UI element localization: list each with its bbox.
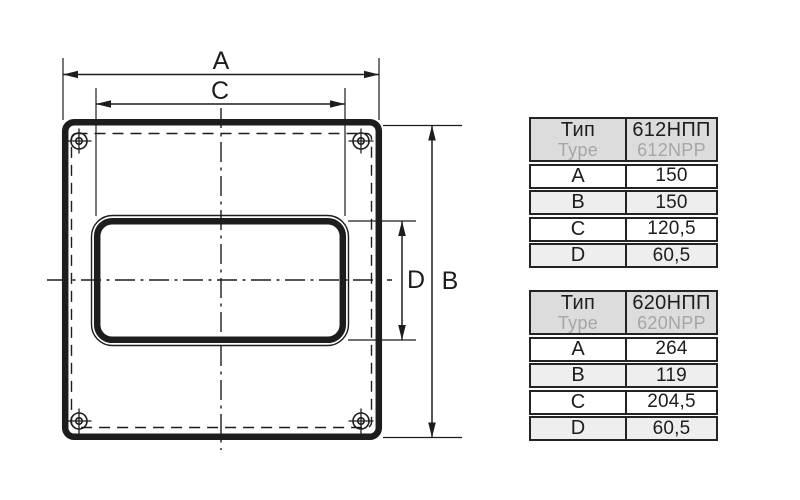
model-label-en: 620NPP	[637, 314, 706, 332]
param-value: 150	[627, 166, 716, 187]
param-name: C	[531, 392, 627, 413]
model-label-ru: 612НПП	[632, 120, 710, 140]
table-header: Тип Type 612НПП 612NPP	[529, 117, 718, 162]
dimension-table-612npp: Тип Type 612НПП 612NPP A 150 B 150 C 120…	[529, 117, 718, 268]
type-label-en: Type	[558, 141, 598, 159]
model-label-en: 612NPP	[637, 141, 706, 159]
param-value: 150	[627, 192, 716, 213]
param-value: 264	[627, 339, 716, 360]
param-name: B	[531, 192, 627, 213]
param-value: 119	[627, 365, 716, 386]
table-row: D 60,5	[529, 416, 718, 441]
dim-label-b: B	[442, 267, 459, 295]
table-header-model-cell: 620НПП 620NPP	[627, 292, 716, 333]
param-name: D	[531, 418, 627, 439]
param-name: A	[531, 339, 627, 360]
param-name: C	[531, 219, 627, 240]
page: A C B	[0, 0, 800, 500]
param-value: 120,5	[627, 219, 716, 240]
type-label-ru: Тип	[561, 120, 595, 140]
table-row: A 264	[529, 337, 718, 362]
model-label-ru: 620НПП	[632, 293, 710, 313]
param-name: A	[531, 166, 627, 187]
param-name: B	[531, 365, 627, 386]
table-row: B 150	[529, 190, 718, 215]
dim-label-d: D	[407, 266, 425, 294]
table-row: A 150	[529, 164, 718, 189]
param-value: 204,5	[627, 392, 716, 413]
dimension-table-620npp: Тип Type 620НПП 620NPP A 264 B 119 C 204…	[529, 290, 718, 441]
table-row: C 120,5	[529, 217, 718, 242]
param-name: D	[531, 245, 627, 266]
table-row: B 119	[529, 363, 718, 388]
table-row: C 204,5	[529, 390, 718, 415]
dim-label-c: C	[211, 77, 229, 105]
type-label-ru: Тип	[561, 293, 595, 313]
table-header-model-cell: 612НПП 612NPP	[627, 119, 716, 160]
param-value: 60,5	[627, 418, 716, 439]
table-header-type-cell: Тип Type	[531, 119, 627, 160]
table-row: D 60,5	[529, 243, 718, 268]
table-header-type-cell: Тип Type	[531, 292, 627, 333]
type-label-en: Type	[558, 314, 598, 332]
param-value: 60,5	[627, 245, 716, 266]
table-header: Тип Type 620НПП 620NPP	[529, 290, 718, 335]
technical-drawing: A C B	[0, 0, 520, 500]
dim-label-a: A	[213, 47, 230, 75]
